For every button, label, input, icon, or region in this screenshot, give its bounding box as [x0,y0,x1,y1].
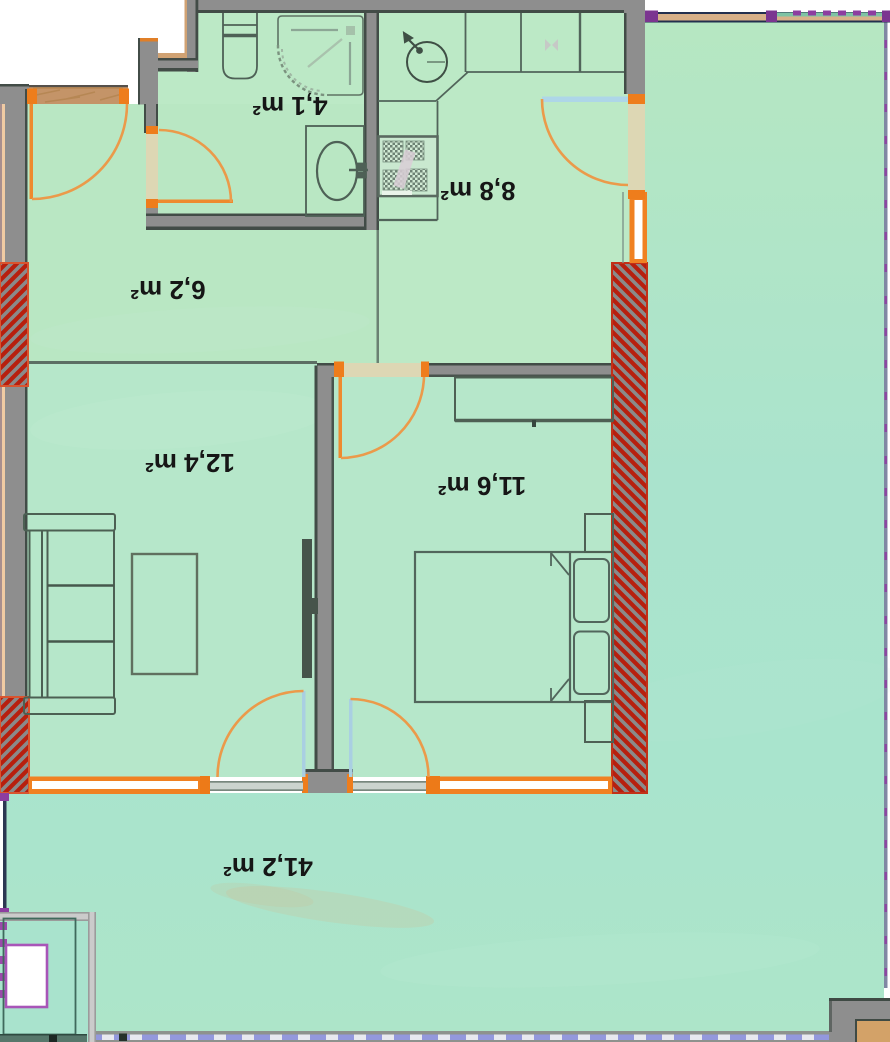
svg-text:12,4 m²: 12,4 m² [145,448,235,478]
svg-text:6,2 m²: 6,2 m² [130,275,205,305]
svg-text:8,8 m²: 8,8 m² [440,176,515,206]
svg-text:4,1 m²: 4,1 m² [252,91,327,121]
svg-text:41,2 m²: 41,2 m² [223,852,313,882]
svg-text:11,6 m²: 11,6 m² [438,471,527,501]
